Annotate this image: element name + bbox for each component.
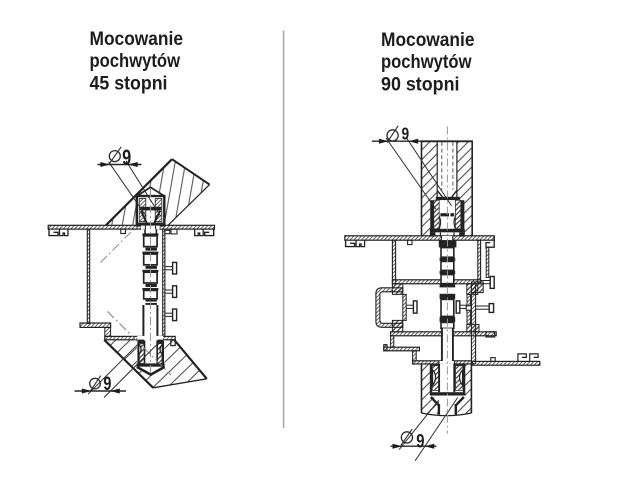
- svg-text:Mocowanie: Mocowanie: [381, 29, 475, 51]
- svg-text:45 stopni: 45 stopni: [90, 73, 168, 95]
- svg-text:9: 9: [122, 145, 131, 170]
- svg-text:9: 9: [103, 372, 111, 395]
- svg-text:9: 9: [402, 125, 410, 144]
- svg-text:pochwytów: pochwytów: [90, 50, 181, 72]
- svg-text:90 stopni: 90 stopni: [381, 74, 460, 96]
- svg-text:pochwytów: pochwytów: [381, 51, 472, 73]
- svg-text:Mocowanie: Mocowanie: [90, 28, 184, 50]
- svg-text:9: 9: [416, 429, 424, 452]
